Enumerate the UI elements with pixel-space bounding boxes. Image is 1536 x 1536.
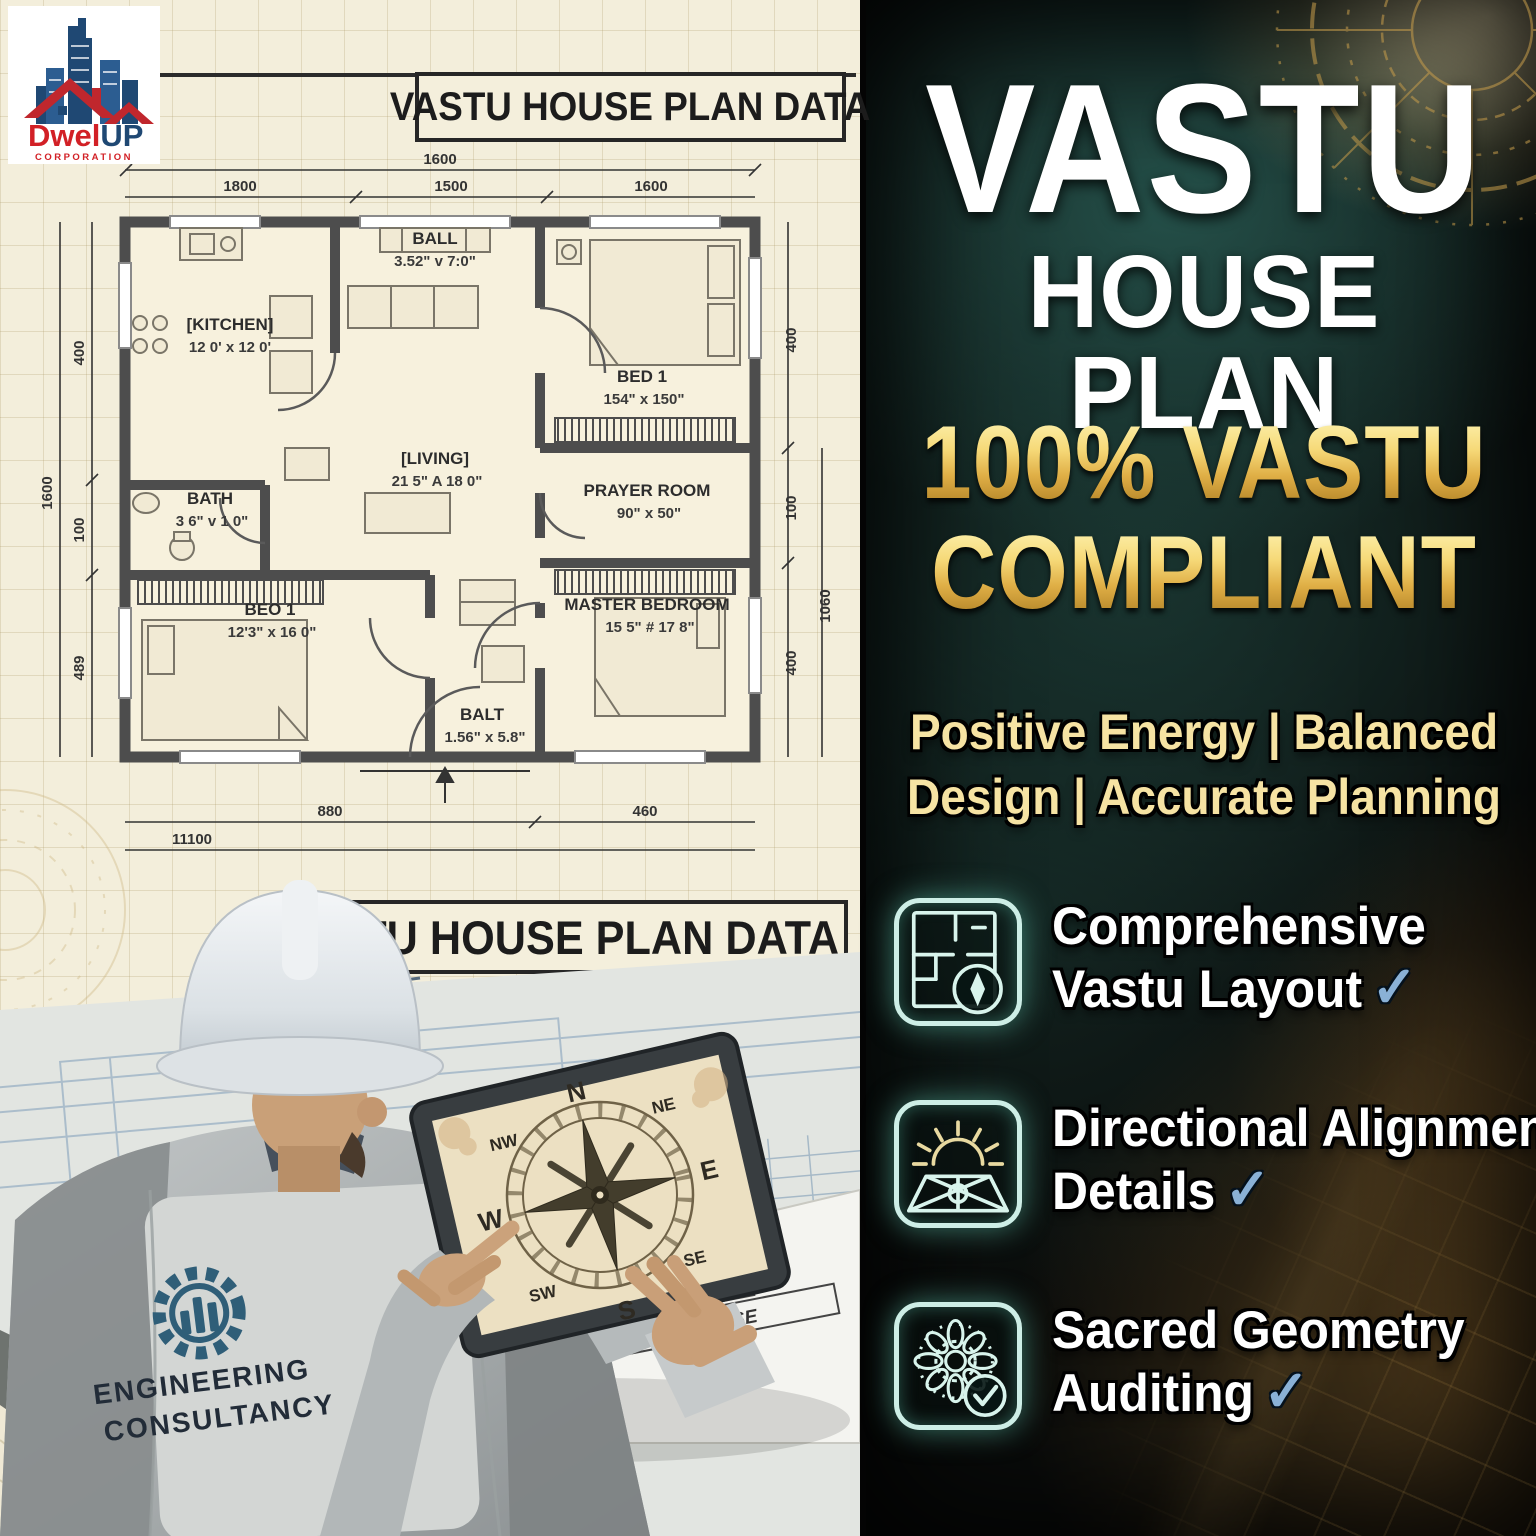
floor-plan-drawing: [KITCHEN] 12 0' x 12 0' BALL 3.52" v 7:0… — [30, 148, 840, 878]
plan-title-top: VASTU HOUSE PLAN DATA — [415, 72, 846, 142]
room-kitchen-size: 12 0' x 12 0' — [189, 339, 271, 356]
room-living-size: 21 5" A 18 0" — [392, 473, 483, 490]
tagline-line2: Design | Accurate Planning — [893, 765, 1515, 830]
room-balt-label: BALT — [460, 705, 505, 724]
tagline: Positive Energy | Balanced Design | Accu… — [866, 700, 1536, 830]
hard-hat — [157, 880, 443, 1095]
gold-line2: COMPLIANT — [910, 518, 1498, 628]
gold-line1: 100% VASTU — [910, 408, 1498, 518]
svg-text:1800: 1800 — [223, 178, 256, 195]
room-bed2-label: BEO 1 — [244, 600, 295, 619]
feature-list: Comprehensive Vastu Layout✓ — [894, 898, 1536, 1504]
room-prayer-label: PRAYER ROOM — [584, 481, 711, 500]
entrance-arrow — [360, 768, 530, 803]
svg-text:1600: 1600 — [423, 151, 456, 168]
mandala-check-icon — [894, 1302, 1022, 1430]
sun-plot-icon — [894, 1100, 1022, 1228]
compliance-banner: 100% VASTU COMPLIANT — [866, 408, 1536, 628]
logo-subtitle: CORPORATION — [35, 152, 133, 163]
room-hall-label: BALL — [412, 229, 457, 248]
svg-text:1600: 1600 — [39, 476, 56, 509]
room-living-label: [LIVING] — [401, 449, 469, 468]
logo-wordmark: DwelUP — [28, 118, 143, 153]
floorplan-panel: DwelUP CORPORATION VASTU HOUSE PLAN DATA… — [0, 0, 860, 1536]
engineer-scene: VABTU HOUSE — [0, 860, 860, 1536]
feature1-line2: Vastu Layout — [1052, 960, 1362, 1019]
check-icon: ✓ — [1371, 955, 1417, 1020]
svg-text:880: 880 — [317, 803, 342, 820]
feature1-line1: Comprehensive — [1052, 898, 1426, 956]
room-kitchen-label: [KITCHEN] — [187, 315, 274, 334]
svg-text:11100: 11100 — [172, 831, 212, 848]
feature3-line1: Sacred Geometry — [1052, 1302, 1465, 1360]
headline-vastu: VASTU — [900, 58, 1508, 238]
floorplan-compass-icon — [894, 898, 1022, 1026]
dwelup-logo: DwelUP CORPORATION — [8, 6, 160, 164]
room-master-size: 15 5" # 17 8" — [605, 619, 694, 636]
svg-text:400: 400 — [783, 327, 800, 352]
room-balt-size: 1.56" x 5.8" — [445, 729, 526, 746]
room-bed1-size: 154" x 150" — [604, 391, 685, 408]
svg-text:489: 489 — [71, 655, 88, 680]
feature-vastu-layout: Comprehensive Vastu Layout✓ — [894, 898, 1536, 1026]
check-icon: ✓ — [1225, 1157, 1271, 1222]
check-icon: ✓ — [1263, 1359, 1309, 1424]
svg-text:400: 400 — [71, 340, 88, 365]
svg-text:400: 400 — [783, 650, 800, 675]
room-hall-size: 3.52" v 7:0" — [394, 253, 476, 270]
room-master-label: MASTER BEDROOM — [564, 595, 729, 614]
svg-text:460: 460 — [632, 803, 657, 820]
svg-text:100: 100 — [783, 495, 800, 520]
room-bath-label: BATH — [187, 489, 233, 508]
room-bed1-label: BED 1 — [617, 367, 667, 386]
feature-directional-alignment: Directional Alignment Details✓ — [894, 1100, 1536, 1228]
vastu-house-plan-poster: DwelUP CORPORATION VASTU HOUSE PLAN DATA… — [0, 0, 1536, 1536]
room-bed2-size: 12'3" x 16 0" — [228, 624, 317, 641]
svg-text:1500: 1500 — [434, 178, 467, 195]
room-prayer-size: 90" x 50" — [617, 505, 681, 522]
feature2-line2: Details — [1052, 1162, 1215, 1221]
svg-text:1060: 1060 — [817, 589, 834, 622]
feature3-line2: Auditing — [1052, 1364, 1254, 1423]
feature2-line1: Directional Alignment — [1052, 1100, 1536, 1158]
feature-sacred-geometry: Sacred Geometry Auditing✓ — [894, 1302, 1536, 1430]
dwelup-logo-icon: DwelUP CORPORATION — [8, 6, 160, 164]
svg-text:1600: 1600 — [634, 178, 667, 195]
svg-text:100: 100 — [71, 517, 88, 542]
headline: VASTU HOUSE PLAN — [866, 58, 1536, 444]
promo-panel: VASTU HOUSE PLAN 100% VASTU COMPLIANT Po… — [860, 0, 1536, 1536]
room-bath-size: 3 6" v 1 0" — [176, 513, 249, 530]
tagline-line1: Positive Energy | Balanced — [893, 700, 1515, 765]
